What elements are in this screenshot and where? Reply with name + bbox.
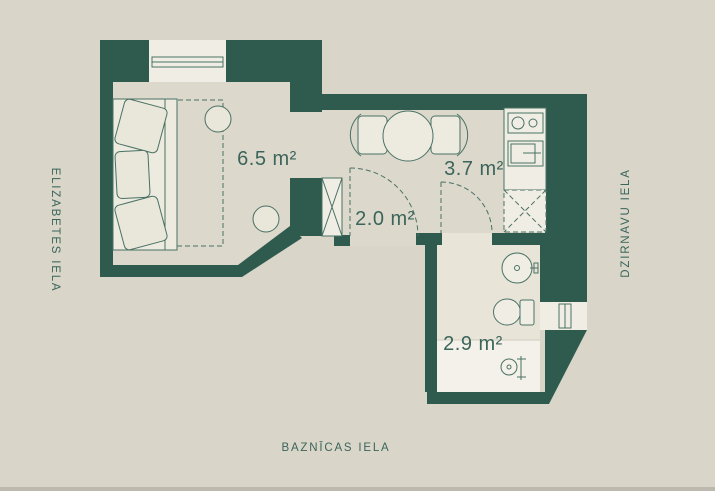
bathroom-door-threshold [442,233,492,247]
counter-body [504,108,546,190]
wall-bottom-living [100,265,242,277]
dining-table [383,111,433,161]
hall-wardrobe [322,178,342,236]
washbasin [502,253,532,283]
wall-bathroom-bottom [427,392,549,404]
wall-step-block [290,40,322,112]
street-label-left: ELIZABETES IELA [49,168,61,293]
wall-bathroom-right [540,245,587,302]
dining-set [350,111,467,161]
wall-right-lower-diagonal [545,330,587,404]
sofa-cushion-middle [115,150,150,199]
wall-kitchen-bath-divider [492,233,550,245]
wall-entrance-left-jamb [334,235,350,246]
hallway-area-label: 2.0 m² [355,208,415,230]
image-bottom-edge [0,487,715,491]
floor-plan-canvas: 6.5 m² 2.0 m² 3.7 m² 2.9 m² ELIZABETES I… [0,0,715,491]
bathroom-area-label: 2.9 m² [443,333,503,355]
wall-entrance-right-jamb [416,233,442,245]
floor-plan-svg: 6.5 m² 2.0 m² 3.7 m² 2.9 m² ELIZABETES I… [0,0,715,491]
toilet-bowl [494,299,521,325]
kitchen-area-label: 3.7 m² [444,158,504,180]
toilet-tank [520,300,534,325]
wall-bathroom-left [425,245,437,392]
side-table-top [205,106,231,132]
street-label-right: DZIRNAVU IELA [620,168,632,277]
side-table-bottom [253,206,279,232]
kitchen-counter [504,108,546,232]
wall-hall-block [290,178,322,236]
street-label-bottom: BAZNĪCAS IELA [281,442,390,454]
wall-left [100,40,113,277]
living-room-area-label: 6.5 m² [237,148,297,170]
living-window-opening [149,40,226,82]
chair-right [431,116,460,154]
bath-window-opening [540,302,587,330]
entrance-threshold [348,236,418,246]
